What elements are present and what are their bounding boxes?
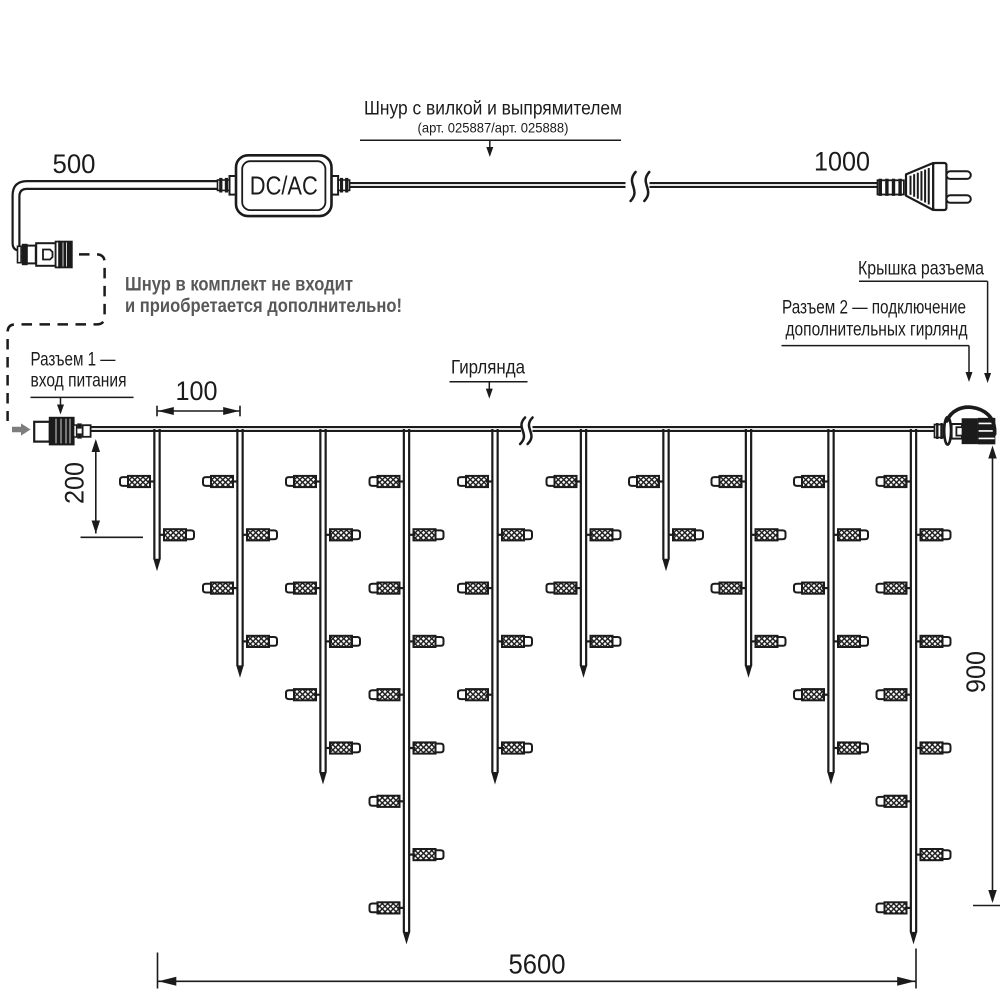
svg-text:500: 500 <box>53 149 96 179</box>
svg-text:200: 200 <box>60 462 90 504</box>
svg-text:Разъем 1 —: Разъем 1 — <box>31 350 117 371</box>
svg-text:вход питания: вход питания <box>31 371 127 392</box>
svg-text:DC/AC: DC/AC <box>250 171 318 201</box>
svg-text:Шнур в комплект не входит: Шнур в комплект не входит <box>125 274 353 296</box>
svg-text:и приобретается дополнительно!: и приобретается дополнительно! <box>125 295 402 317</box>
svg-text:1000: 1000 <box>814 147 870 177</box>
svg-text:(арт. 025887/арт. 025888): (арт. 025887/арт. 025888) <box>418 121 569 136</box>
svg-text:Крышка разъема: Крышка разъема <box>858 259 984 280</box>
svg-text:Гирлянда: Гирлянда <box>451 358 525 379</box>
svg-text:100: 100 <box>176 376 218 406</box>
svg-text:Разъем 2 — подключение: Разъем 2 — подключение <box>782 298 966 319</box>
svg-text:Шнур с вилкой и выпрямителем: Шнур с вилкой и выпрямителем <box>364 98 622 120</box>
svg-text:900: 900 <box>961 651 991 693</box>
svg-text:дополнительных гирлянд: дополнительных гирлянд <box>786 320 968 341</box>
svg-text:5600: 5600 <box>509 949 566 980</box>
